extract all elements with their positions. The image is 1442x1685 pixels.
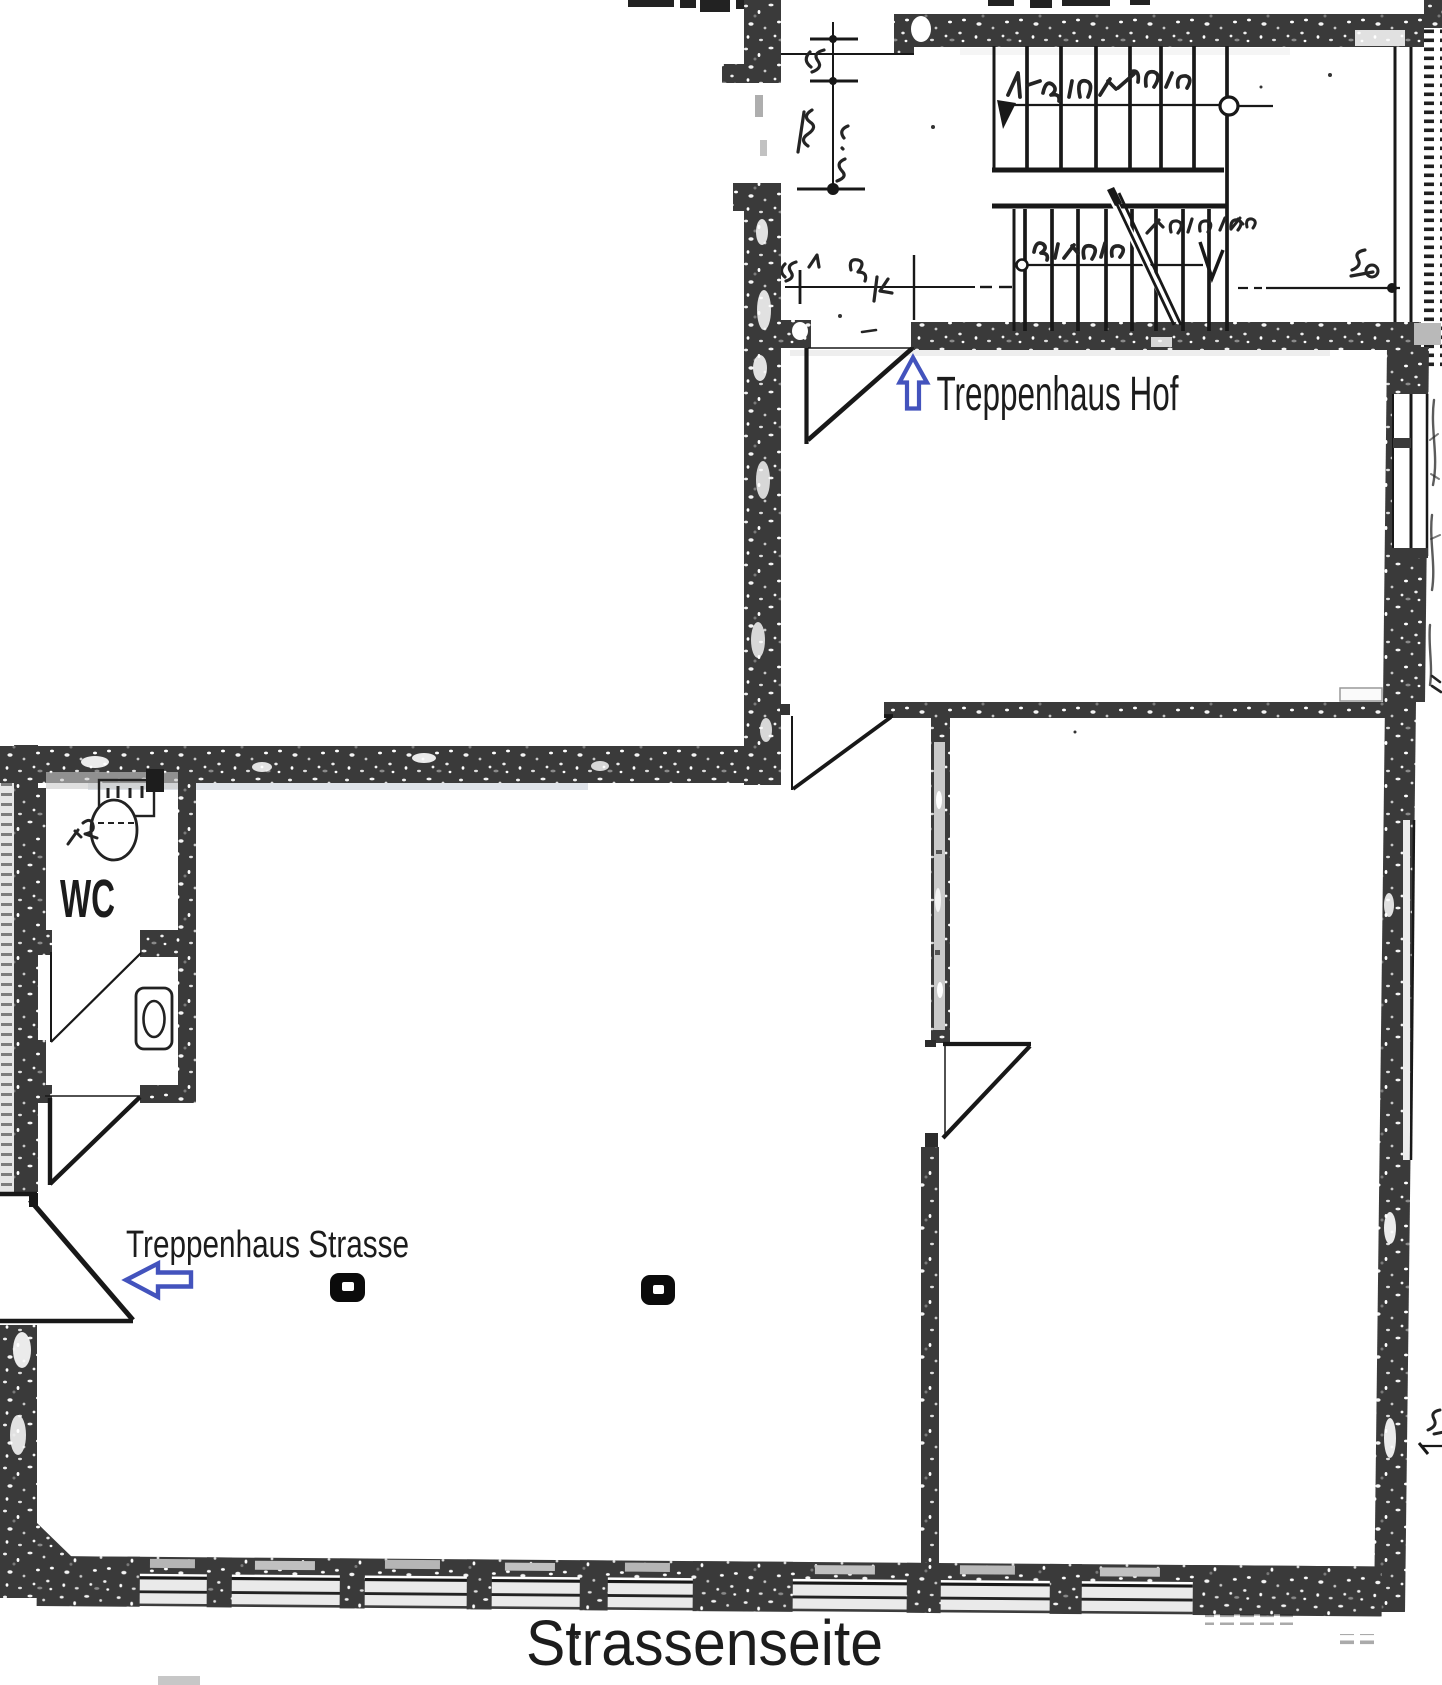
svg-text:Strassenseite: Strassenseite	[526, 1607, 883, 1679]
svg-text:Treppenhaus Strasse: Treppenhaus Strasse	[126, 1224, 409, 1266]
svg-text:Treppenhaus Hof: Treppenhaus Hof	[937, 368, 1179, 421]
svg-text:WC: WC	[60, 869, 115, 929]
